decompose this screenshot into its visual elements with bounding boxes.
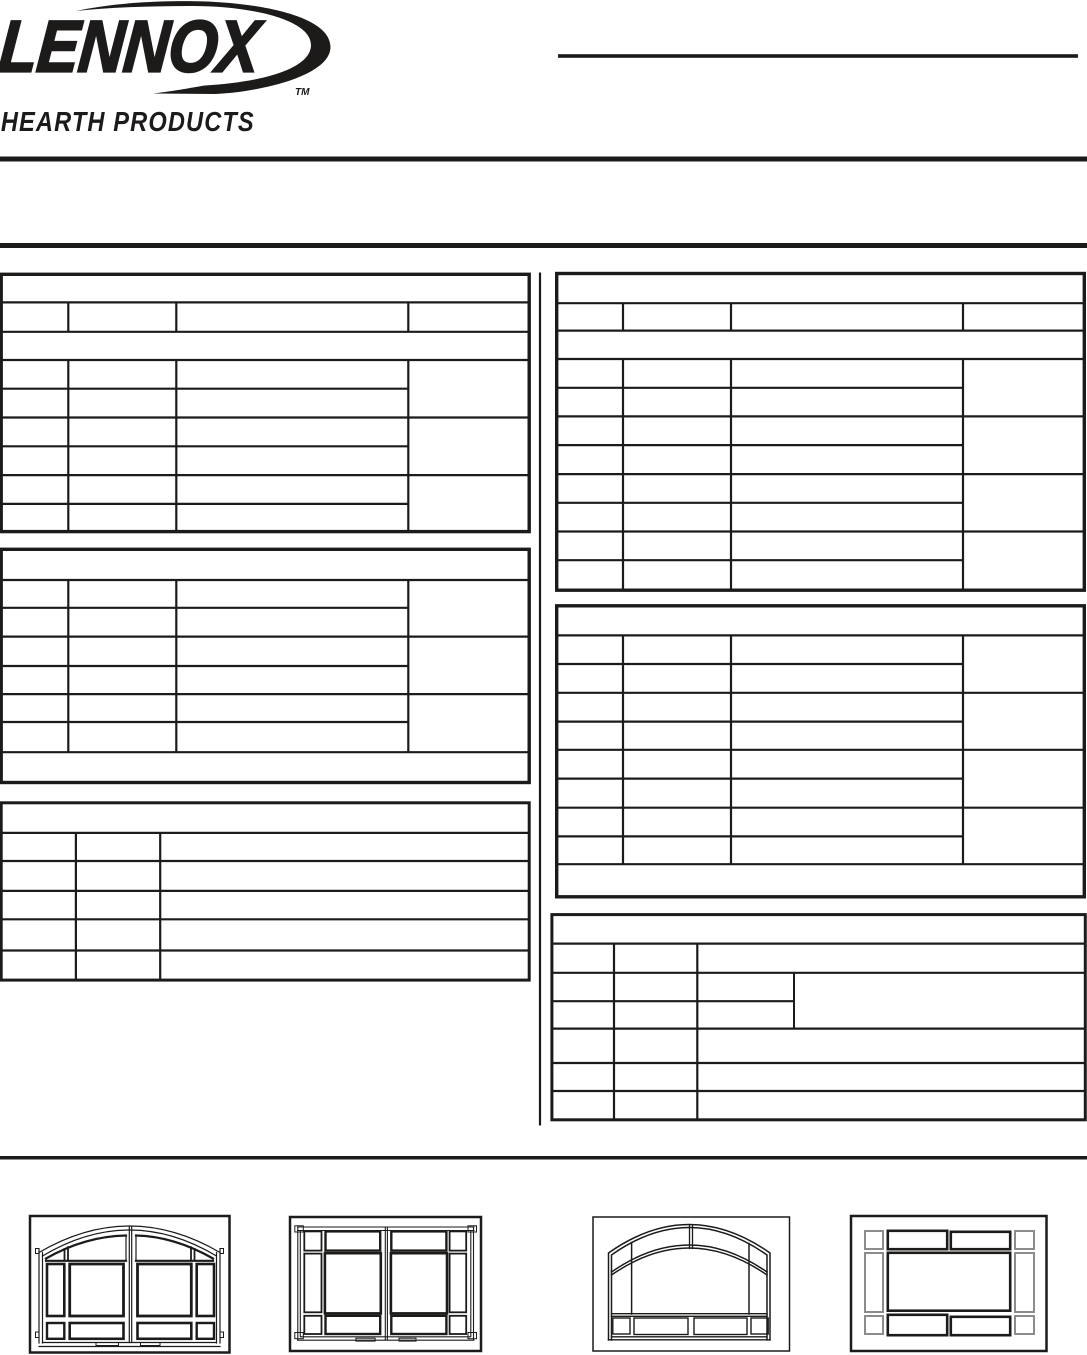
svg-text:LENNOX: LENNOX: [0, 6, 266, 87]
svg-text:HEARTH PRODUCTS: HEARTH PRODUCTS: [1, 107, 254, 137]
svg-text:TM: TM: [295, 87, 310, 98]
